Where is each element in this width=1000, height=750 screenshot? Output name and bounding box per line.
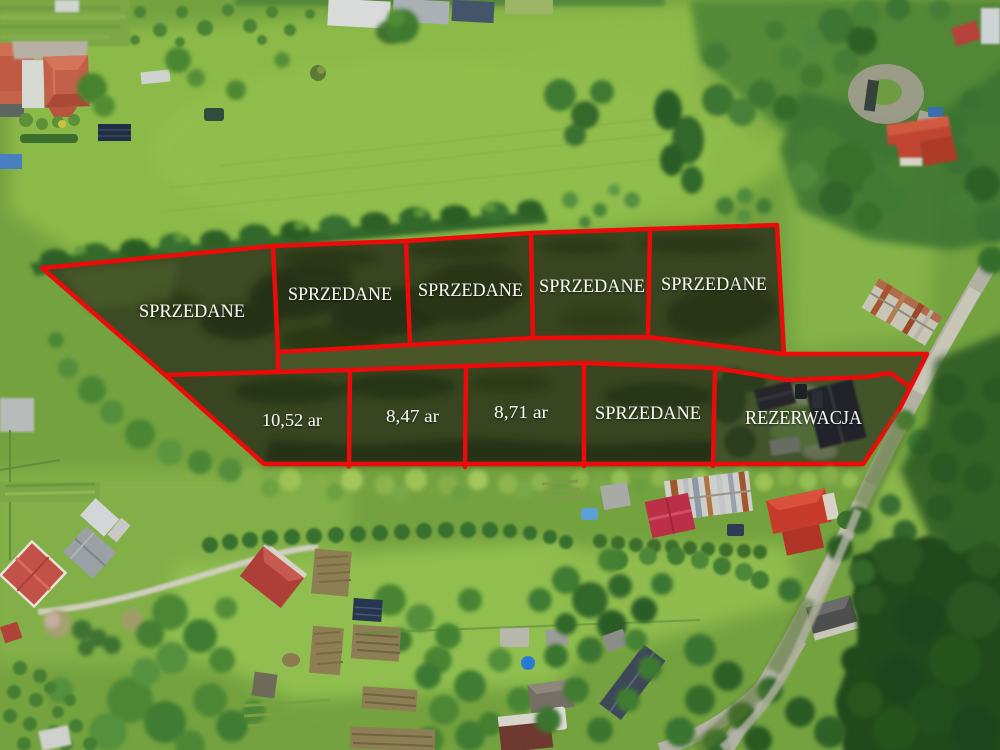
svg-text:SPRZEDANE: SPRZEDANE	[139, 301, 245, 322]
svg-text:SPRZEDANE: SPRZEDANE	[595, 403, 701, 424]
svg-text:SPRZEDANE: SPRZEDANE	[539, 276, 645, 297]
svg-text:8,71 ar: 8,71 ar	[494, 402, 548, 422]
svg-text:10,52 ar: 10,52 ar	[262, 410, 322, 430]
svg-text:SPRZEDANE: SPRZEDANE	[288, 284, 392, 305]
svg-text:SPRZEDANE: SPRZEDANE	[418, 280, 523, 301]
svg-text:REZERWACJA: REZERWACJA	[745, 407, 862, 429]
svg-text:SPRZEDANE: SPRZEDANE	[661, 274, 767, 295]
svg-text:8,47 ar: 8,47 ar	[386, 406, 439, 426]
